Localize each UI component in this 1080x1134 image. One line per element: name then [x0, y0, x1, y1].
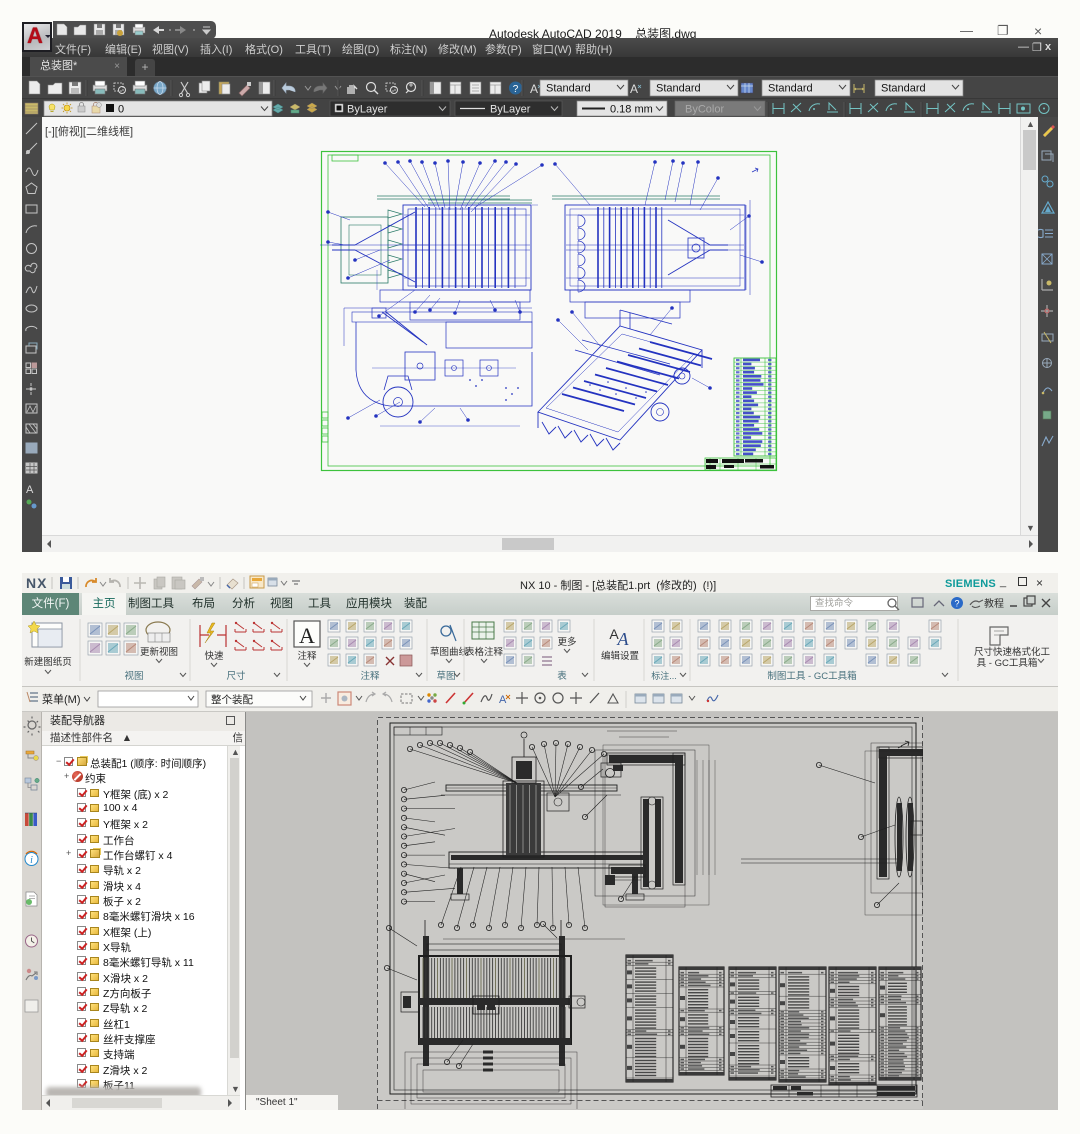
svg-text:具 - GC工具箱: 具 - GC工具箱 — [977, 657, 1038, 669]
svg-text:?: ? — [513, 84, 519, 95]
svg-text:更多: 更多 — [557, 636, 576, 648]
svg-text:菜单(M): 菜单(M) — [42, 693, 81, 706]
svg-text:制图工具 - GC工具箱: 制图工具 - GC工具箱 — [767, 670, 856, 682]
svg-text:注释: 注释 — [297, 650, 317, 662]
svg-text:Standard: Standard — [881, 83, 926, 95]
svg-text:ByLayer: ByLayer — [347, 104, 388, 116]
svg-text:A: A — [617, 629, 630, 649]
svg-text:视图: 视图 — [124, 670, 143, 682]
svg-text:A: A — [530, 82, 538, 96]
svg-text:更新视图: 更新视图 — [140, 646, 178, 658]
svg-text:A: A — [630, 82, 638, 96]
svg-text:整个装配: 整个装配 — [211, 693, 253, 706]
svg-text:ByColor: ByColor — [685, 104, 724, 116]
svg-text:新建图纸页: 新建图纸页 — [24, 656, 72, 668]
svg-text:?: ? — [954, 599, 959, 609]
svg-text:A: A — [26, 484, 34, 496]
svg-text:Standard: Standard — [546, 83, 591, 95]
svg-text:0: 0 — [118, 104, 124, 116]
svg-text:编辑设置: 编辑设置 — [601, 650, 639, 662]
svg-text:A: A — [299, 623, 315, 648]
svg-text:Standard: Standard — [768, 83, 813, 95]
svg-text:注释: 注释 — [360, 670, 380, 682]
svg-text:标注...: 标注... — [651, 670, 677, 681]
svg-text:表: 表 — [557, 670, 567, 682]
svg-text:表格注释: 表格注释 — [465, 646, 504, 658]
svg-text:0.18 mm: 0.18 mm — [610, 104, 653, 116]
svg-text:i: i — [30, 855, 33, 866]
svg-text:尺寸快速格式化工: 尺寸快速格式化工 — [974, 646, 1051, 658]
svg-text:ByLayer: ByLayer — [490, 104, 531, 116]
svg-text:草图: 草图 — [436, 670, 455, 682]
svg-text:A: A — [499, 694, 507, 706]
svg-text:草图曲线: 草图曲线 — [430, 646, 469, 658]
svg-text:教程: 教程 — [984, 597, 1004, 610]
svg-text:Standard: Standard — [656, 83, 701, 95]
svg-text:快速: 快速 — [204, 650, 224, 662]
svg-text:尺寸: 尺寸 — [226, 670, 246, 682]
